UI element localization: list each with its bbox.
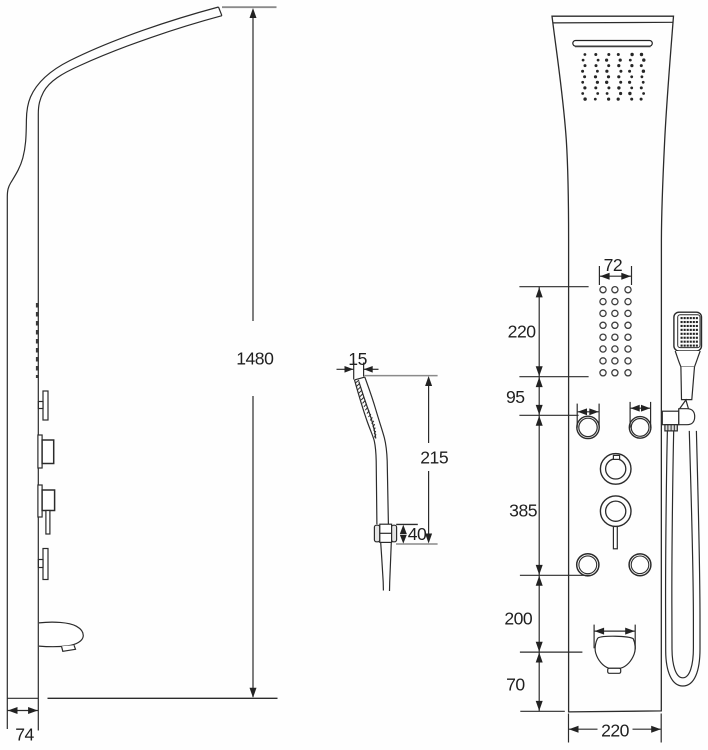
svg-text:15: 15 [348,349,367,369]
svg-text:72: 72 [604,255,623,275]
svg-text:200: 200 [504,609,533,629]
svg-text:95: 95 [506,387,525,407]
svg-text:74: 74 [15,725,34,745]
svg-text:40: 40 [408,524,427,544]
svg-text:1480: 1480 [236,349,274,369]
svg-text:220: 220 [601,721,630,741]
svg-text:385: 385 [509,501,538,521]
svg-text:215: 215 [420,448,449,468]
svg-text:220: 220 [508,321,537,341]
svg-text:70: 70 [506,674,525,694]
